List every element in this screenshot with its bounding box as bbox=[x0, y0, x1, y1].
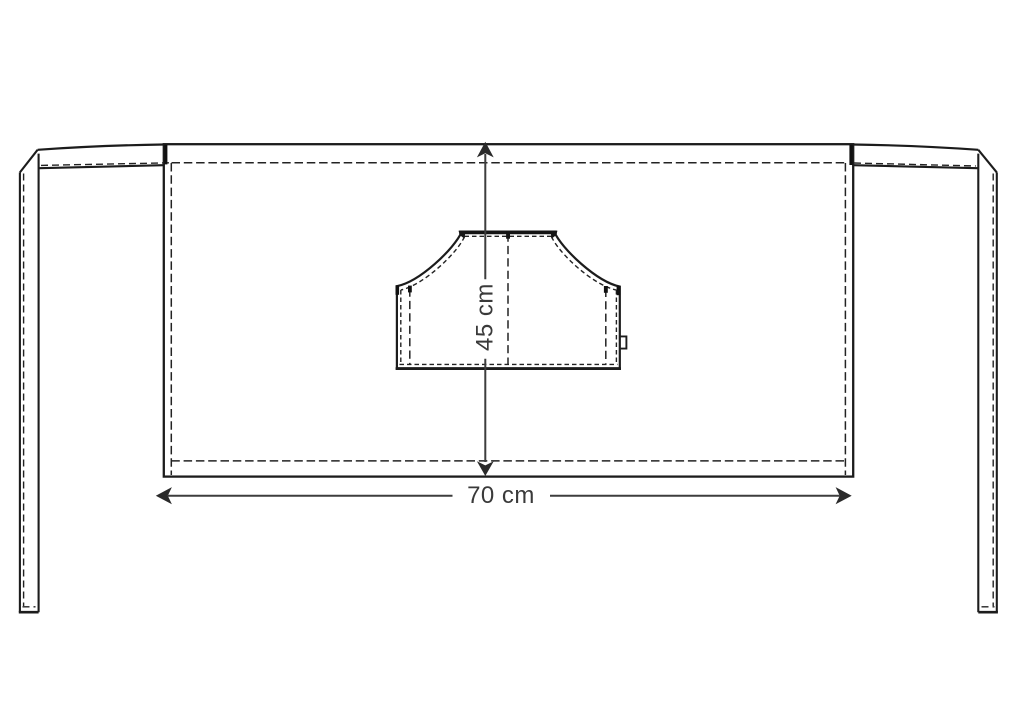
svg-text:45 cm: 45 cm bbox=[472, 283, 499, 351]
svg-text:70 cm: 70 cm bbox=[467, 482, 535, 509]
